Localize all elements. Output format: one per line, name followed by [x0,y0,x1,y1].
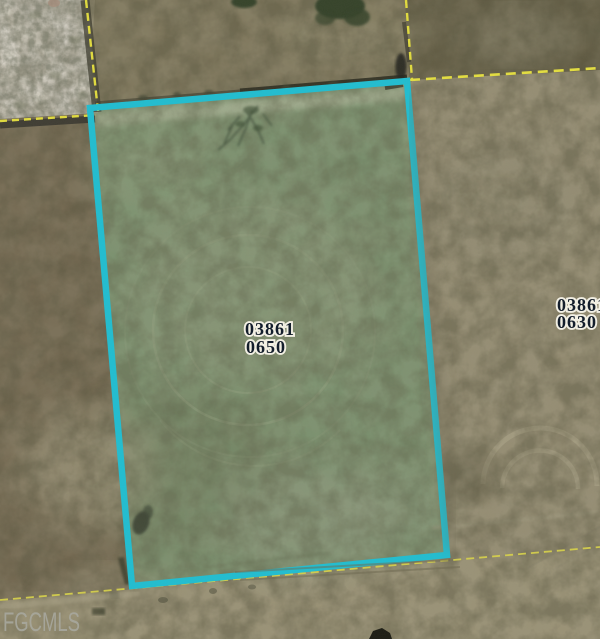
svg-text:03861: 03861 [245,319,295,339]
svg-text:0650: 0650 [246,337,286,357]
svg-text:0630: 0630 [557,312,597,332]
svg-text:FGCMLS: FGCMLS [3,607,80,637]
